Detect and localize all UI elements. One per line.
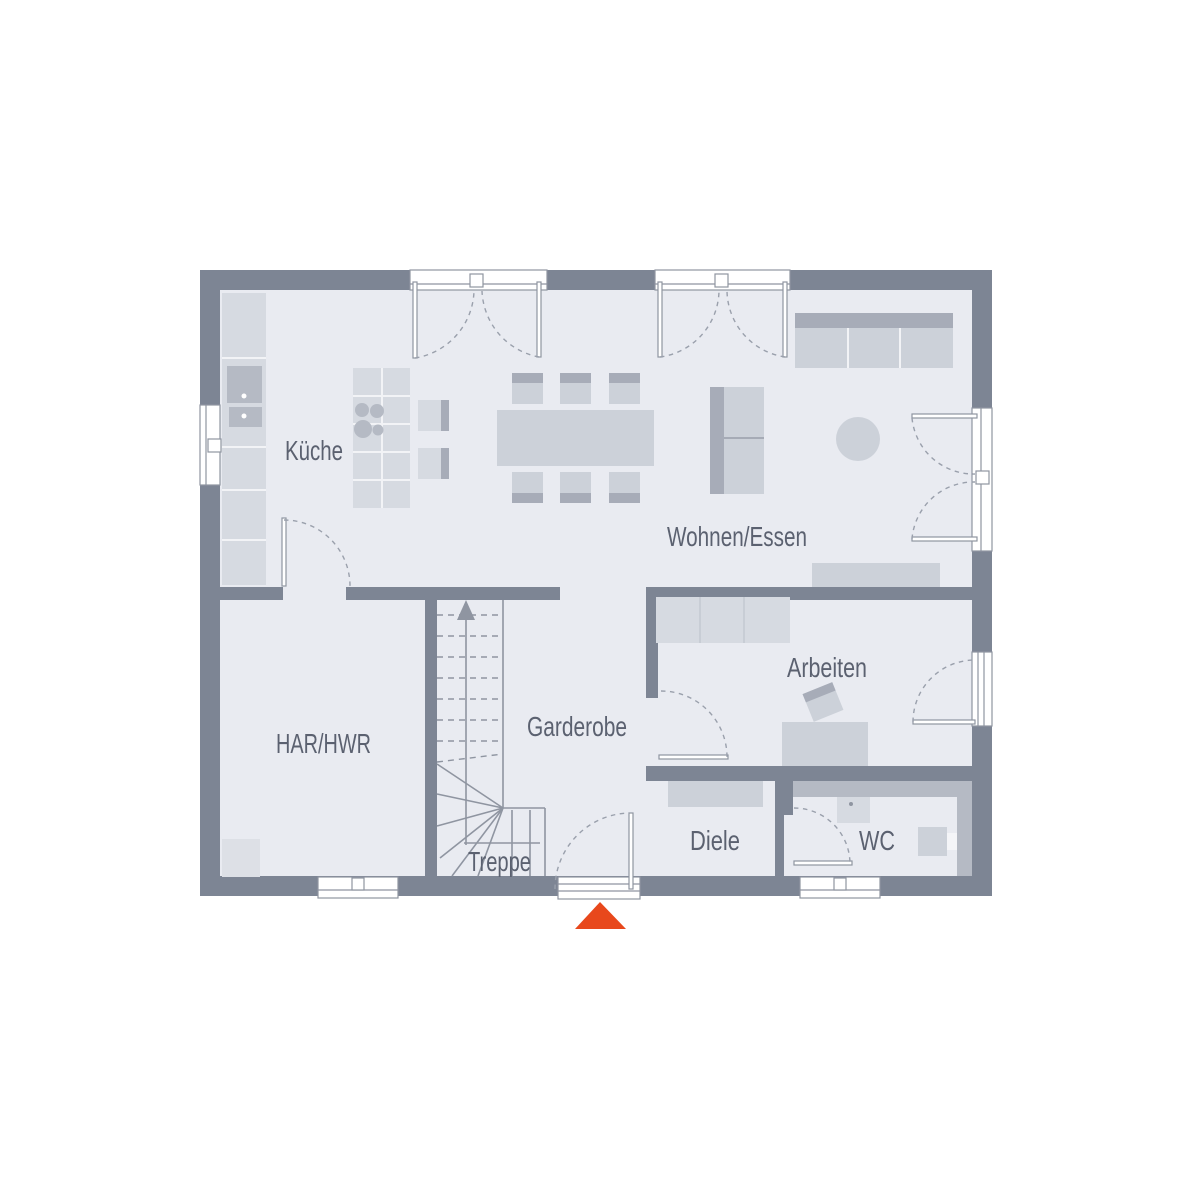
door-leaf [912, 537, 977, 541]
room-label-har-hwr: HAR/HWR [276, 728, 371, 759]
dining-table [497, 410, 654, 466]
wall-left [200, 270, 220, 896]
door-leaf-wc [794, 861, 852, 865]
sink-faucet-dot-2 [242, 414, 247, 419]
wc-toilet [918, 827, 947, 856]
door-leaf [913, 720, 975, 724]
window-kitchen [200, 405, 221, 485]
room-label-arbeiten: Arbeiten [787, 652, 867, 683]
room-label-kueche: Küche [285, 435, 343, 466]
hall-sideboard [668, 781, 763, 807]
wc-sink-faucet-dot [849, 802, 853, 806]
wall-stair-left [425, 598, 437, 876]
dining-chair [560, 472, 591, 503]
door-leaf [658, 282, 662, 357]
room-label-wohnen-essen: Wohnen/Essen [667, 521, 807, 552]
har-appliance [222, 839, 260, 877]
room-label-garderobe: Garderobe [527, 711, 627, 742]
dining-set [497, 373, 654, 503]
door-leaf [537, 282, 541, 357]
sofa [795, 313, 953, 368]
wc-sink [837, 797, 870, 823]
wall-above-stairs [346, 587, 560, 600]
wall-diele-wc-upper [775, 781, 793, 815]
door-leaf [413, 282, 417, 358]
door-leaf-har [282, 518, 286, 586]
living-sideboard [812, 563, 940, 587]
room-label-diele: Diele [690, 825, 740, 856]
door-handle-icon [715, 274, 728, 287]
entrance-marker-icon [575, 902, 626, 929]
office-cabinet [656, 597, 790, 643]
wall-kitchen-har-left [215, 587, 283, 600]
door-handle-icon [470, 274, 483, 287]
window-har [318, 877, 398, 898]
dining-chair [512, 373, 543, 404]
wc-toilet-cistern [947, 833, 957, 850]
dining-chair [560, 373, 591, 404]
door-leaf [783, 282, 787, 357]
round-side-table [836, 417, 880, 461]
door-leaf-office [659, 755, 728, 759]
wall-office-bottom [646, 766, 972, 781]
dining-chair [609, 472, 640, 503]
door-handle-icon [976, 471, 989, 484]
wall-diele-wc-spine [775, 815, 784, 876]
tall-cabinet [710, 387, 764, 494]
wall-right [972, 270, 992, 896]
door-leaf [912, 414, 977, 418]
dining-chair [609, 373, 640, 404]
window-wc [800, 877, 880, 898]
dining-chair [512, 472, 543, 503]
window-handle-icon [834, 878, 846, 890]
wc-prewall-top [793, 781, 972, 797]
room-label-treppe: Treppe [468, 846, 531, 877]
floor-plan: Küche Wohnen/Essen HAR/HWR Garderobe Tre… [0, 0, 1200, 1200]
wall-top [200, 270, 992, 290]
window-handle-icon [352, 878, 364, 890]
door-leaf [629, 813, 633, 889]
kitchen-counter [222, 293, 266, 585]
office-desk [782, 722, 868, 766]
sink-faucet-dot [242, 394, 247, 399]
kitchen-stool [418, 448, 449, 479]
kitchen-stool [418, 400, 449, 431]
wc-prewall-right [957, 797, 972, 876]
room-label-wc: WC [859, 825, 895, 856]
floor-plan-page: Küche Wohnen/Essen HAR/HWR Garderobe Tre… [0, 0, 1200, 1200]
window-handle-icon [208, 439, 221, 452]
